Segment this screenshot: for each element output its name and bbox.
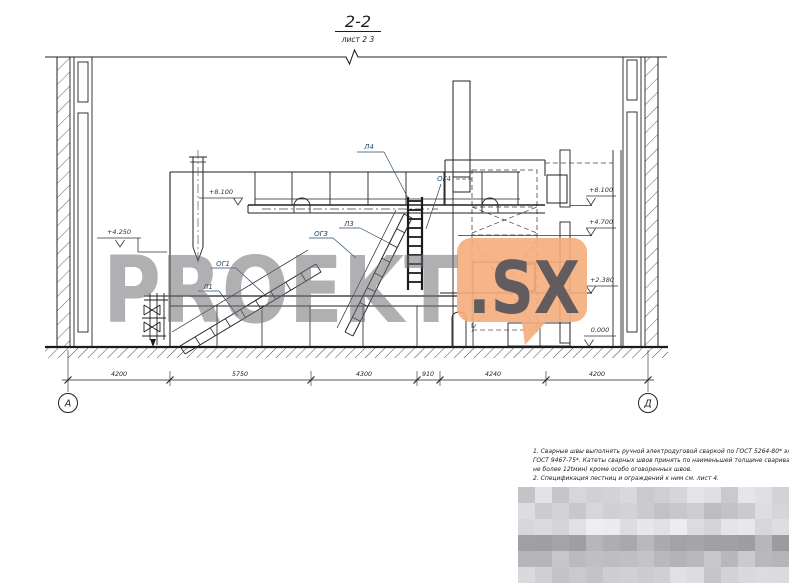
pixel-cell	[772, 535, 789, 552]
pixel-cell	[620, 487, 637, 504]
pixel-cell	[755, 487, 772, 504]
pixel-cell	[654, 535, 671, 552]
pixel-cell	[569, 567, 586, 583]
pixel-cell	[670, 487, 687, 504]
watermark-brand: PROEKT	[103, 237, 458, 344]
pixel-cell	[535, 567, 552, 583]
note-line: 1. Сварные швы выполнять ручной электрод…	[533, 447, 789, 456]
sheet-reference: лист 2 3	[341, 35, 375, 44]
pixel-cell	[637, 567, 654, 583]
pixel-cell	[535, 503, 552, 520]
dim-value: 5750	[232, 371, 248, 378]
pixel-cell	[704, 551, 721, 568]
pixel-cell	[518, 567, 535, 583]
drawing-line	[397, 229, 405, 233]
railing-posts	[255, 172, 518, 205]
watermark: PROEKT .SX	[103, 237, 587, 345]
pixel-cell	[772, 503, 789, 520]
pixel-cell	[670, 551, 687, 568]
svg-text:+8.100: +8.100	[209, 188, 233, 196]
pixel-cell	[620, 503, 637, 520]
pixel-cell	[738, 503, 755, 520]
drawing-sheet: 2-2 лист 2 3	[0, 0, 789, 583]
pixel-cell	[721, 567, 738, 583]
pixel-cell	[721, 519, 738, 536]
dim-value: 4200	[111, 371, 127, 378]
pixel-cell	[518, 503, 535, 520]
pixel-cell	[704, 519, 721, 536]
pixel-cell	[704, 567, 721, 583]
pixel-cell	[687, 519, 704, 536]
top-border-break-line	[45, 50, 667, 64]
svg-text:+2.380: +2.380	[590, 276, 614, 284]
pixel-cell	[738, 551, 755, 568]
svg-text:+8.100: +8.100	[589, 186, 613, 194]
note-line: не более 12tмин) кроме особо оговоренных…	[533, 465, 789, 474]
pixel-cell	[738, 567, 755, 583]
pixel-cell	[552, 519, 569, 536]
pixel-cell	[670, 567, 687, 583]
pixel-cell	[654, 519, 671, 536]
wall-panel	[78, 62, 88, 102]
dim-value: 910	[422, 371, 434, 378]
pixel-cell	[654, 487, 671, 504]
pixel-cell	[620, 519, 637, 536]
pixel-cell	[755, 535, 772, 552]
pixel-cell	[586, 567, 603, 583]
pixel-cell	[552, 551, 569, 568]
general-notes: 1. Сварные швы выполнять ручной электрод…	[533, 447, 789, 483]
note-line: ГОСТ 9467-75*. Катеты сварных швов приня…	[533, 456, 789, 465]
pixel-cell	[637, 519, 654, 536]
left-wall	[57, 57, 92, 347]
pixel-cell	[738, 487, 755, 504]
wall-panel	[627, 112, 637, 332]
dim-value: 4240	[485, 371, 501, 378]
svg-text:+4.700: +4.700	[589, 218, 613, 226]
watermark-suffix: .SX	[468, 246, 580, 330]
elevation-left-top: +8.100	[199, 188, 243, 205]
pixel-cell	[569, 519, 586, 536]
pixel-cell	[687, 487, 704, 504]
pixel-cell	[552, 503, 569, 520]
pixel-cell	[670, 519, 687, 536]
ground-line	[45, 347, 668, 358]
svg-text:ОГ4: ОГ4	[437, 175, 451, 183]
pixel-cell	[704, 487, 721, 504]
axis-letter-d: Д	[643, 399, 651, 410]
pixel-cell	[704, 535, 721, 552]
pixel-cell	[603, 535, 620, 552]
pixel-cell	[772, 487, 789, 504]
pixel-cell	[654, 567, 671, 583]
pixel-cell	[704, 503, 721, 520]
pixel-cell	[637, 535, 654, 552]
note-line: 2. Спецификация лестниц и ограждений к н…	[533, 474, 789, 483]
pixel-cell	[518, 551, 535, 568]
label-l4: Л4	[357, 143, 408, 198]
pixel-cell	[687, 551, 704, 568]
pixel-cell	[654, 551, 671, 568]
pixel-cell	[637, 551, 654, 568]
pixel-cell	[586, 535, 603, 552]
label-og4: ОГ4	[426, 175, 472, 229]
pixel-cell	[569, 503, 586, 520]
pixel-cell	[772, 567, 789, 583]
pixel-cell	[535, 519, 552, 536]
pixel-cell	[603, 551, 620, 568]
elevation-zero: 0.000	[584, 326, 616, 347]
pixel-cell	[603, 487, 620, 504]
pixel-cell	[721, 503, 738, 520]
wall-panel	[78, 113, 88, 332]
right-wall	[623, 57, 658, 347]
pixel-cell	[518, 519, 535, 536]
pixel-cell	[755, 551, 772, 568]
pixel-cell	[637, 487, 654, 504]
pixel-cell	[569, 487, 586, 504]
pixel-cell	[620, 535, 637, 552]
pixel-cell	[670, 535, 687, 552]
pixel-cell	[569, 535, 586, 552]
pixel-cell	[687, 567, 704, 583]
pixel-cell	[518, 535, 535, 552]
view-title: 2-2 лист 2 3	[335, 12, 381, 44]
pixel-cell	[535, 487, 552, 504]
dimension-line: 4200 5750 4300 910 4240 4200 А Д	[59, 350, 658, 413]
pixel-cell	[552, 487, 569, 504]
pixel-cell	[586, 503, 603, 520]
pixel-cell	[535, 551, 552, 568]
dim-value: 4200	[589, 371, 605, 378]
pixel-cell	[620, 567, 637, 583]
pixel-cell	[586, 551, 603, 568]
pixel-cell	[755, 503, 772, 520]
pixel-cell	[603, 503, 620, 520]
pixel-cell	[755, 519, 772, 536]
pixel-cell	[603, 567, 620, 583]
pixel-cell	[586, 487, 603, 504]
pixel-cell	[721, 551, 738, 568]
pixel-cell	[637, 503, 654, 520]
pixel-cell	[738, 535, 755, 552]
pixel-cell	[535, 535, 552, 552]
pixel-cell	[569, 551, 586, 568]
pixel-cell	[654, 503, 671, 520]
pixel-cell	[552, 567, 569, 583]
pixel-cell	[772, 519, 789, 536]
ground-hatch	[45, 348, 668, 358]
pixelated-censored-block	[518, 487, 789, 583]
wall-panel	[627, 60, 637, 100]
elevation-right-top: +8.100	[570, 186, 616, 206]
pixel-cell	[518, 487, 535, 504]
svg-text:+4.250: +4.250	[107, 228, 131, 236]
pixel-cell	[721, 535, 738, 552]
svg-text:Л3: Л3	[343, 220, 354, 228]
axis-letter-a: А	[64, 399, 72, 410]
pixel-cell	[670, 503, 687, 520]
pixel-cell	[620, 551, 637, 568]
section-title: 2-2	[345, 12, 371, 31]
svg-text:Л4: Л4	[363, 143, 374, 151]
pixel-cell	[687, 503, 704, 520]
svg-text:0.000: 0.000	[591, 326, 610, 334]
pixel-cell	[755, 567, 772, 583]
pixel-cell	[586, 519, 603, 536]
pixel-cell	[772, 551, 789, 568]
pixel-cell	[721, 487, 738, 504]
dim-value: 4300	[356, 371, 372, 378]
pixel-cell	[687, 535, 704, 552]
pixel-cell	[738, 519, 755, 536]
pixel-cell	[552, 535, 569, 552]
pixel-cell	[603, 519, 620, 536]
